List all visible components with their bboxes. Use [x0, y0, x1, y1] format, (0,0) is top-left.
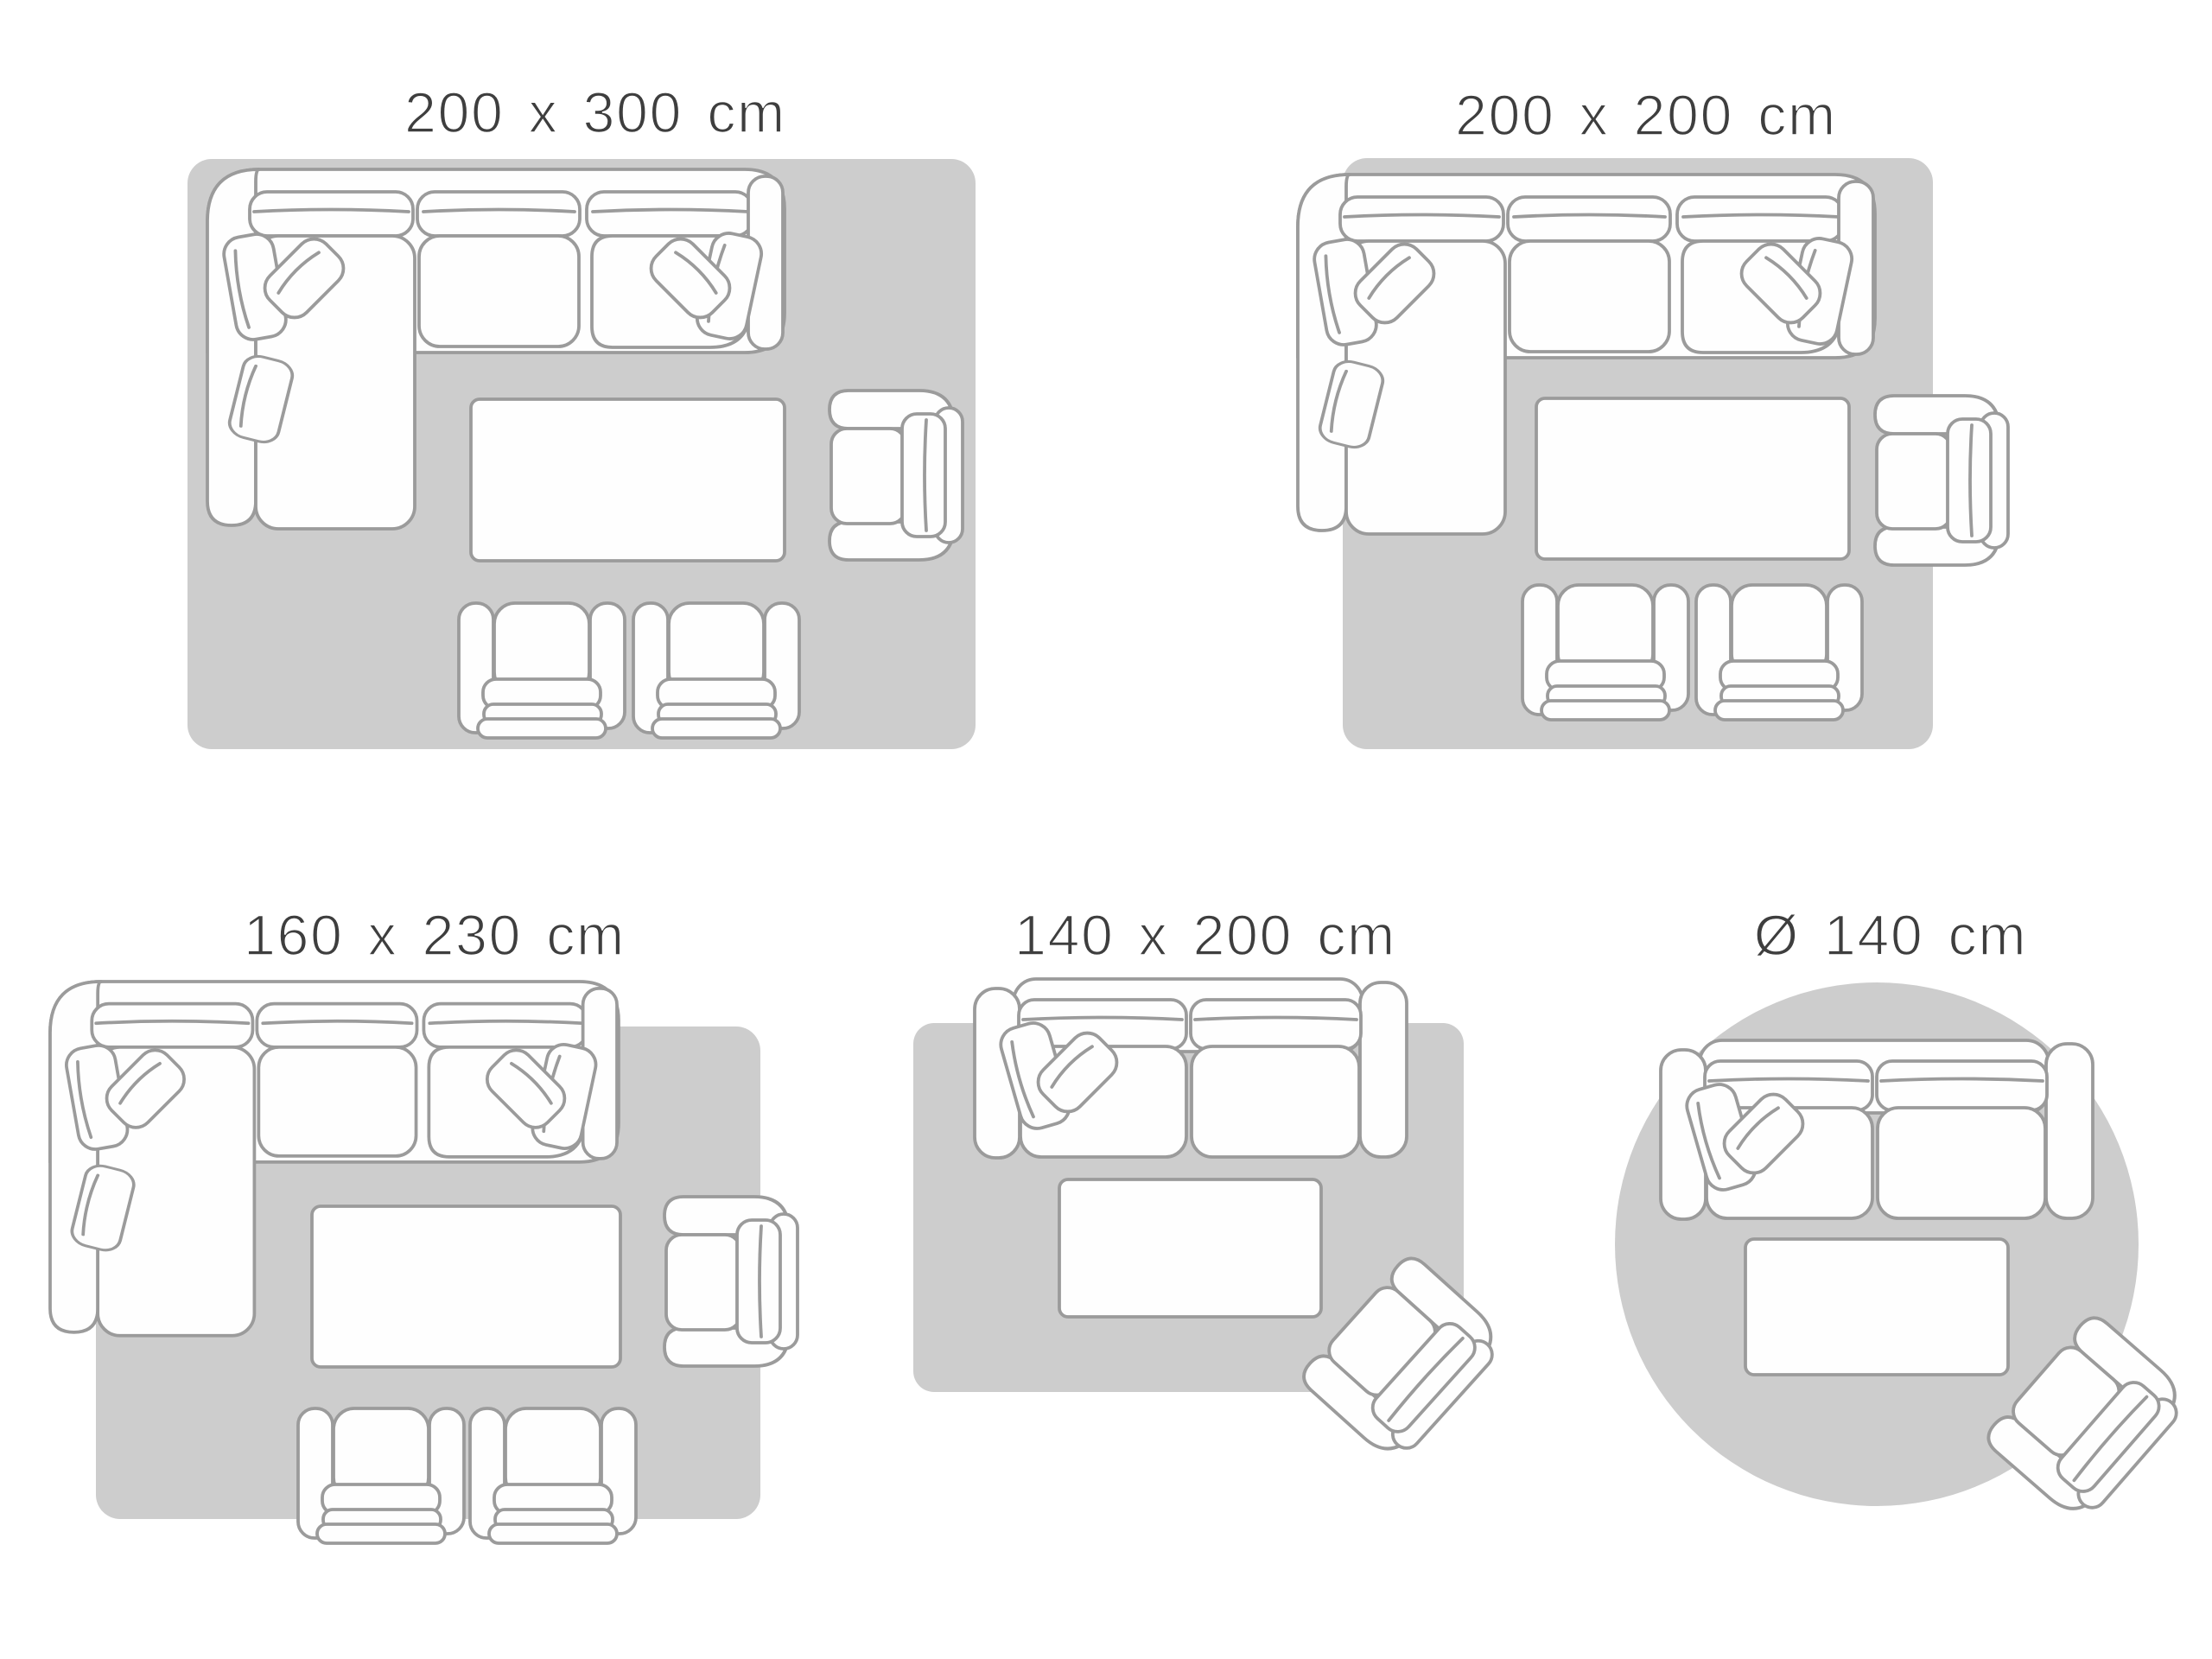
svg-text:160 x 230 cm: 160 x 230 cm: [244, 903, 626, 967]
svg-text:140 x 200 cm: 140 x 200 cm: [1014, 903, 1396, 967]
svg-text:200 x 300 cm: 200 x 300 cm: [404, 80, 786, 144]
svg-text:200 x 200 cm: 200 x 200 cm: [1455, 83, 1837, 147]
svg-text:Ø 140 cm: Ø 140 cm: [1754, 903, 2028, 967]
